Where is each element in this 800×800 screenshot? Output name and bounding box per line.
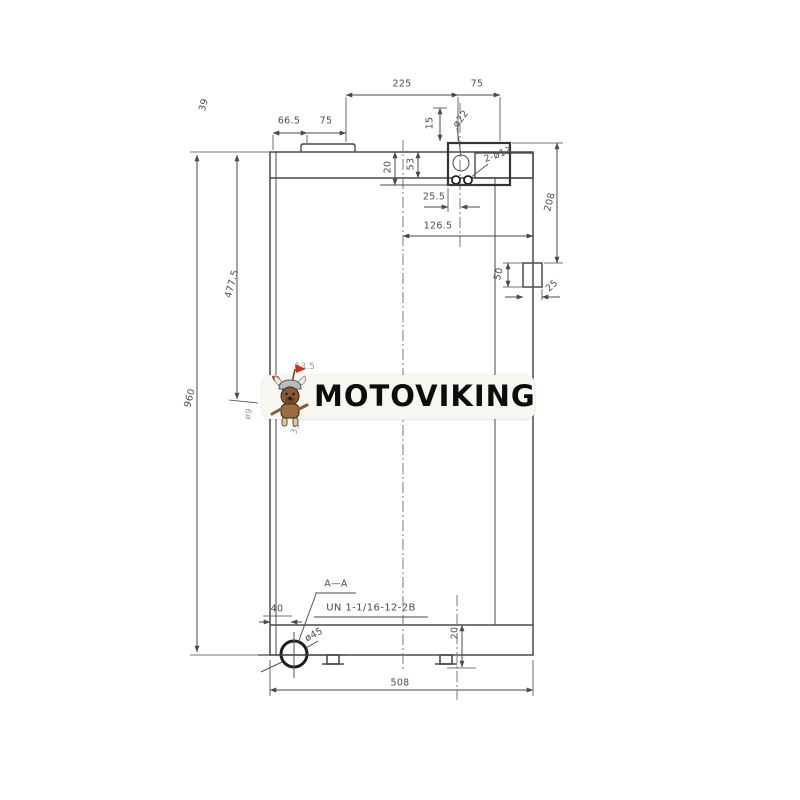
top-tab (301, 144, 355, 152)
dim-label-20-port: 20 (383, 161, 394, 174)
dim-label-20-bottom: 20 (450, 627, 461, 640)
viking-mascot-icon (262, 361, 320, 433)
top-port-assembly (380, 128, 533, 185)
dim-label-75-top: 75 (471, 79, 484, 90)
dim-label-40: 40 (271, 604, 284, 615)
dim-label-15: 15 (425, 117, 436, 130)
technical-drawing-page: 225 75 66.5 75 15 ø22 2-ø13 20 53 25.5 1… (0, 0, 800, 800)
dim-label-66-5: 66.5 (278, 116, 300, 127)
dim-label-53: 53 (406, 158, 417, 171)
dim-label-25-5: 25.5 (423, 192, 445, 203)
brand-wordmark: MOTOVIKING (314, 379, 536, 413)
dim-label-126-5: 126.5 (424, 221, 453, 232)
dim-label-225: 225 (392, 79, 411, 90)
dim-label-75-tab: 75 (320, 116, 333, 127)
watermark-badge: MOTOVIKING (262, 375, 535, 419)
section-label: A—A (324, 579, 347, 590)
mounting-feet (322, 655, 457, 664)
dim-label-508: 508 (390, 678, 409, 689)
thread-callout: UN 1-1/16-12-2B (326, 603, 416, 614)
